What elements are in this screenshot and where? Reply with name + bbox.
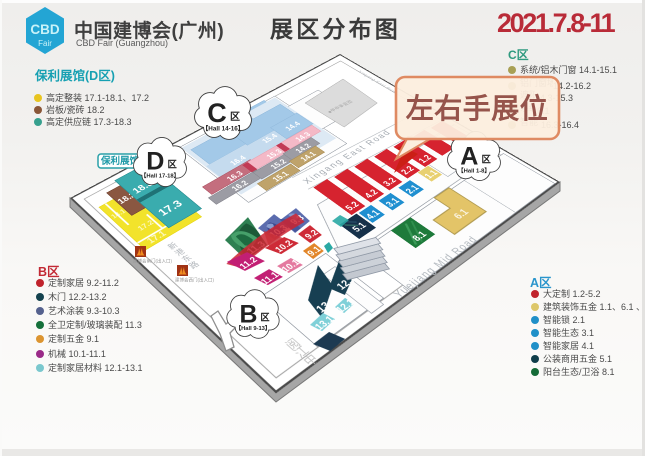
svg-text:建博会南门(出入口): 建博会南门(出入口)	[133, 258, 172, 265]
svg-text:区: 区	[230, 111, 240, 123]
svg-text:区: 区	[260, 312, 269, 322]
svg-text:【Hall 14-16】: 【Hall 14-16】	[202, 125, 244, 133]
svg-text:A: A	[460, 142, 478, 170]
svg-text:C: C	[207, 98, 227, 128]
svg-text:建博会西门(出入口): 建博会西门(出入口)	[175, 277, 214, 284]
svg-text:【Hall 9-13】: 【Hall 9-13】	[235, 324, 270, 332]
svg-text:B: B	[239, 301, 257, 328]
svg-text:区: 区	[481, 155, 491, 165]
svg-text:【Hall 17-18】: 【Hall 17-18】	[141, 171, 180, 179]
svg-text:D: D	[146, 147, 164, 175]
svg-text:【Hall 1-8】: 【Hall 1-8】	[458, 166, 490, 174]
svg-text:区: 区	[167, 160, 177, 170]
svg-text:左右手展位: 左右手展位	[406, 92, 549, 124]
